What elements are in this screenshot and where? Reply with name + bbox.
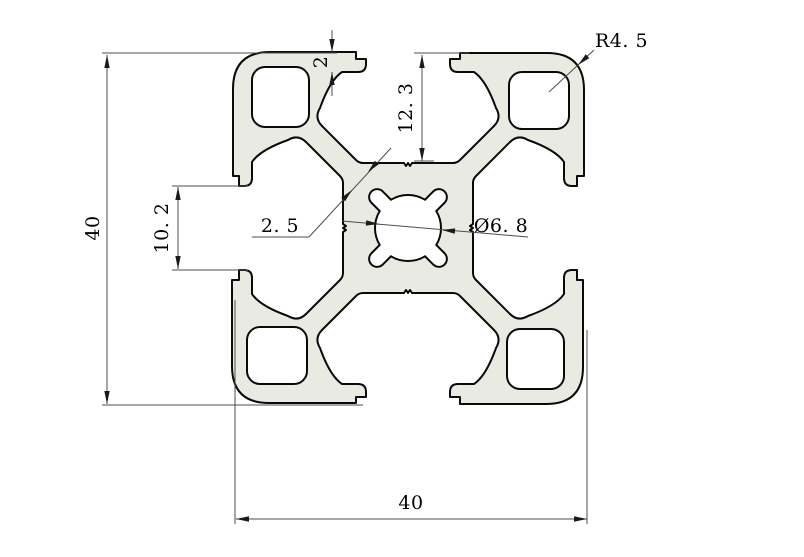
dim-slot-depth-label: 12. 3 xyxy=(395,83,417,134)
corner-cavity-hole xyxy=(507,329,564,389)
arrowhead xyxy=(175,256,180,269)
arrowhead xyxy=(329,39,334,52)
dim-overall-width-label: 40 xyxy=(398,492,423,514)
arrowhead xyxy=(419,55,424,68)
corner-cavity-hole xyxy=(509,72,569,129)
arrowhead xyxy=(574,516,587,521)
technical-drawing: 40 10. 2 12. 3 2 2. 5 Ø6. 8 R4. 5 40 xyxy=(0,0,804,557)
arrowhead xyxy=(175,187,180,200)
dim-corner-radius-label: R4. 5 xyxy=(595,30,648,52)
arrowhead xyxy=(236,516,249,521)
dim-slot-opening-label: 10. 2 xyxy=(151,203,173,254)
drawing-canvas: 40 10. 2 12. 3 2 2. 5 Ø6. 8 R4. 5 40 xyxy=(0,0,804,557)
dim-web-thickness-label: 2. 5 xyxy=(261,215,299,237)
arrowhead xyxy=(104,55,109,68)
dim-center-bore-label: Ø6. 8 xyxy=(474,215,528,237)
center-bore-hole xyxy=(369,189,447,267)
corner-cavity-hole xyxy=(247,327,307,384)
dim-overall-height-label: 40 xyxy=(82,215,104,240)
arrowhead xyxy=(419,148,424,161)
dim-lip-thickness-label: 2 xyxy=(310,56,332,69)
arrowhead xyxy=(104,391,109,404)
corner-cavity-hole xyxy=(252,67,309,127)
